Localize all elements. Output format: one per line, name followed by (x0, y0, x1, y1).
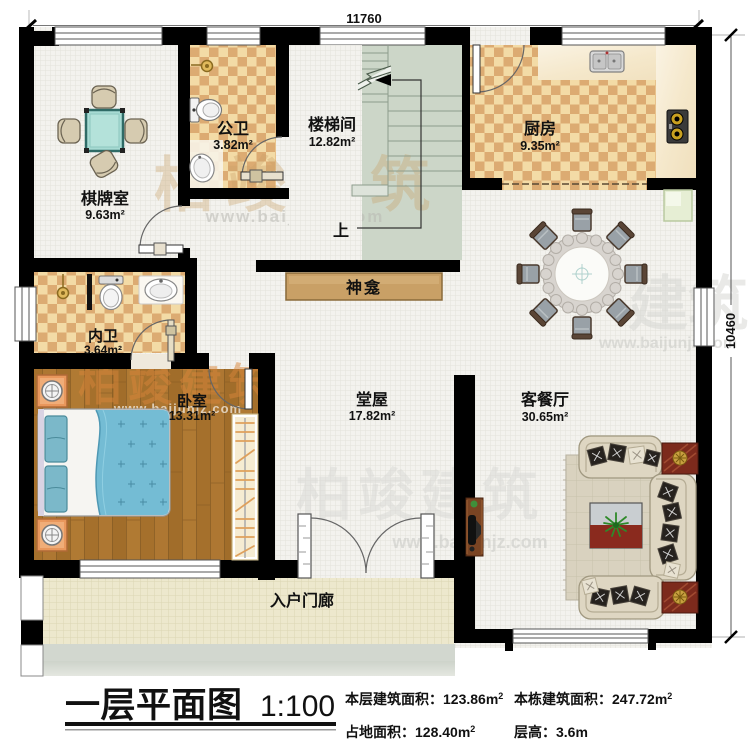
svg-text:13.31m²: 13.31m² (169, 409, 216, 423)
svg-text:入户门廊: 入户门廊 (270, 591, 334, 610)
svg-text:堂屋: 堂屋 (356, 390, 388, 409)
svg-text:9.63m²: 9.63m² (85, 208, 125, 222)
svg-text:卧室: 卧室 (177, 392, 207, 410)
svg-text:层高：3.6m: 层高：3.6m (514, 724, 588, 740)
svg-text:www.baijunjz.com: www.baijunjz.com (598, 335, 737, 352)
svg-text:棋牌室: 棋牌室 (81, 189, 129, 208)
svg-text:本栋建筑面积：247.72m2: 本栋建筑面积：247.72m2 (514, 691, 672, 707)
svg-text:客餐厅: 客餐厅 (521, 390, 569, 409)
svg-text:本层建筑面积：123.86m2: 本层建筑面积：123.86m2 (345, 691, 503, 707)
svg-text:9.35m²: 9.35m² (520, 139, 560, 153)
svg-text:神龛: 神龛 (346, 278, 382, 297)
svg-text:11760: 11760 (346, 11, 381, 26)
svg-text:17.82m²: 17.82m² (349, 409, 396, 423)
svg-text:楼梯间: 楼梯间 (308, 115, 356, 134)
svg-text:12.82m²: 12.82m² (309, 135, 356, 149)
svg-text:上: 上 (333, 222, 349, 240)
svg-text:厨房: 厨房 (524, 119, 556, 138)
svg-text:3.64m²: 3.64m² (84, 343, 122, 357)
svg-text:1:100: 1:100 (260, 690, 335, 723)
svg-text:3.82m²: 3.82m² (213, 138, 253, 152)
svg-text:一层平面图: 一层平面图 (65, 686, 243, 725)
svg-text:公卫: 公卫 (217, 120, 249, 138)
svg-text:占地面积：128.40m2: 占地面积：128.40m2 (345, 724, 475, 740)
svg-text:10460: 10460 (723, 313, 738, 349)
svg-text:30.65m²: 30.65m² (522, 410, 569, 424)
